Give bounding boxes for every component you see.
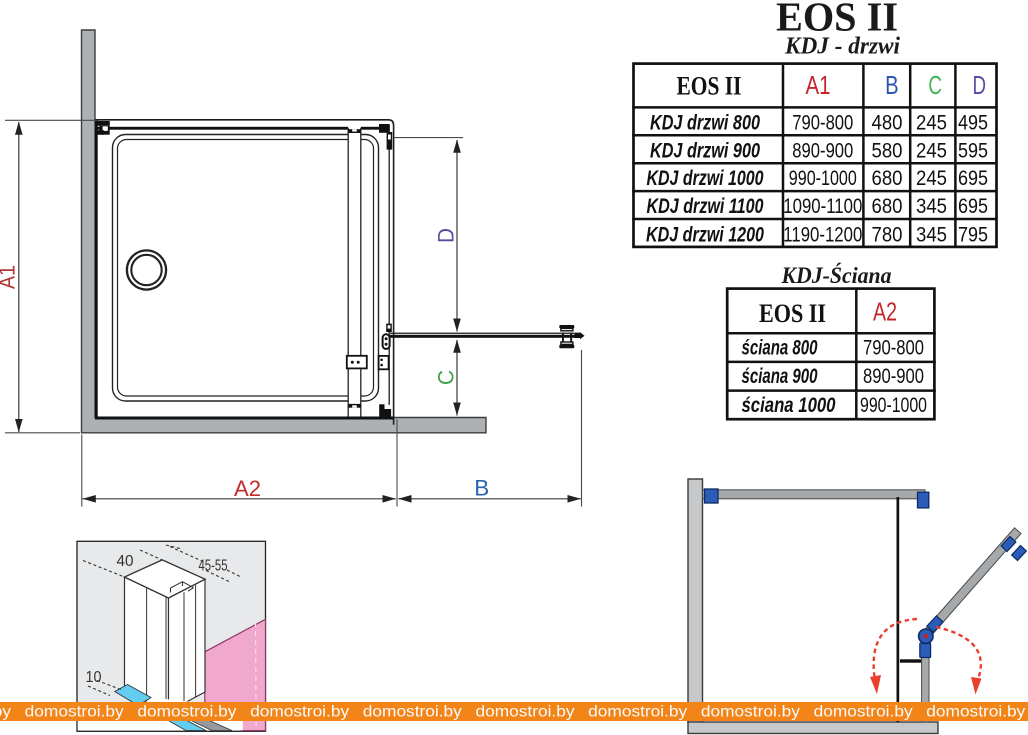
svg-text:D: D [972,70,986,100]
svg-text:A1: A1 [806,70,831,100]
svg-text:KDJ - drzwi: KDJ - drzwi [784,34,900,60]
svg-text:domostroi.by: domostroi.by [250,703,349,720]
svg-text:domostroi.by: domostroi.by [814,703,913,720]
svg-text:795: 795 [958,222,988,246]
svg-text:A1: A1 [0,265,20,289]
svg-text:790-800: 790-800 [863,336,924,360]
svg-text:245: 245 [916,166,947,190]
svg-text:890-900: 890-900 [863,364,924,388]
svg-text:345: 345 [916,222,947,246]
svg-text:ściana 800: ściana 800 [742,337,818,360]
svg-text:480: 480 [872,110,903,134]
svg-text:595: 595 [958,138,988,162]
svg-text:domostroi.by: domostroi.by [0,703,11,720]
svg-text:580: 580 [872,138,903,162]
svg-text:C: C [434,370,459,385]
svg-text:1190-1200: 1190-1200 [783,222,862,246]
svg-text:695: 695 [958,166,988,190]
svg-text:domostroi.by: domostroi.by [137,703,236,720]
svg-text:EOS II: EOS II [759,299,826,328]
svg-text:ściana 1000: ściana 1000 [742,394,836,417]
svg-text:KDJ drzwi 800: KDJ drzwi 800 [650,111,760,134]
svg-text:A2: A2 [873,297,897,327]
svg-text:domostroi.by: domostroi.by [25,703,124,720]
svg-text:KDJ drzwi 1200: KDJ drzwi 1200 [646,223,764,246]
svg-text:990-1000: 990-1000 [789,166,857,190]
svg-text:ściana 900: ściana 900 [742,365,818,388]
svg-text:KDJ drzwi 1100: KDJ drzwi 1100 [647,195,764,218]
svg-text:EOS II: EOS II [677,72,742,101]
svg-text:695: 695 [958,194,988,218]
svg-text:10: 10 [86,669,102,686]
svg-text:domostroi.by: domostroi.by [926,703,1025,720]
svg-text:890-900: 890-900 [792,138,853,162]
svg-text:495: 495 [958,110,988,134]
svg-text:1090-1100: 1090-1100 [783,194,862,218]
svg-text:245: 245 [916,138,947,162]
svg-text:990-1000: 990-1000 [860,393,927,417]
svg-text:345: 345 [916,194,947,218]
svg-text:D: D [434,228,459,243]
svg-text:B: B [474,476,489,501]
svg-text:domostroi.by: domostroi.by [701,703,800,720]
svg-text:45-55: 45-55 [199,558,228,575]
svg-text:KDJ drzwi 900: KDJ drzwi 900 [650,139,760,162]
svg-text:A2: A2 [234,476,261,501]
svg-text:245: 245 [916,110,947,134]
svg-text:680: 680 [872,166,903,190]
svg-text:780: 780 [872,222,903,246]
svg-text:KDJ-Ściana: KDJ-Ściana [781,262,892,289]
svg-text:680: 680 [872,194,903,218]
svg-text:40: 40 [117,553,134,570]
svg-text:KDJ drzwi 1000: KDJ drzwi 1000 [647,167,764,190]
svg-text:domostroi.by: domostroi.by [588,703,687,720]
svg-text:C: C [928,70,942,100]
svg-text:domostroi.by: domostroi.by [363,703,462,720]
svg-text:B: B [885,70,899,100]
svg-text:domostroi.by: domostroi.by [476,703,575,720]
svg-text:790-800: 790-800 [792,110,853,134]
